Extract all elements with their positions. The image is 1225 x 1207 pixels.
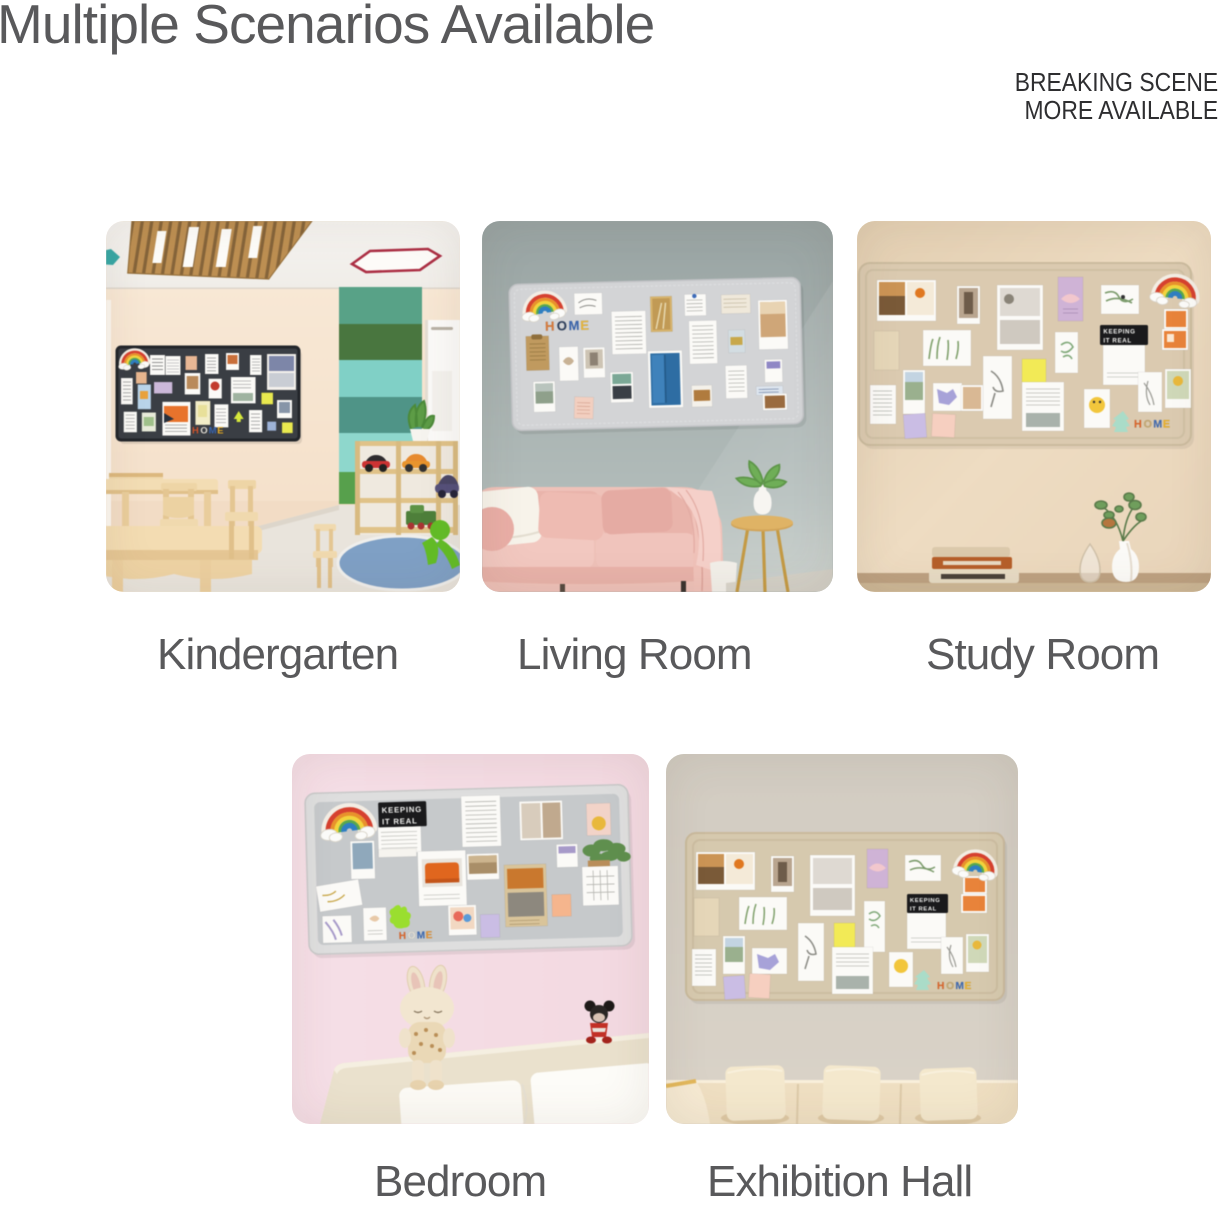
svg-text:H: H: [937, 981, 944, 992]
svg-text:O: O: [557, 318, 568, 333]
svg-text:O: O: [946, 981, 954, 992]
svg-text:H: H: [1134, 419, 1142, 431]
svg-text:KEEPING: KEEPING: [910, 898, 941, 904]
svg-text:IT REAL: IT REAL: [910, 907, 937, 913]
svg-text:O: O: [200, 426, 207, 436]
svg-text:H: H: [192, 426, 199, 436]
svg-text:H: H: [399, 931, 407, 942]
svg-text:M: M: [209, 426, 217, 436]
svg-text:M: M: [568, 318, 579, 333]
svg-text:E: E: [965, 981, 972, 992]
svg-text:KEEPING: KEEPING: [1103, 328, 1135, 335]
svg-text:KEEPING: KEEPING: [382, 805, 423, 815]
svg-text:M: M: [1153, 419, 1162, 431]
svg-text:E: E: [1163, 419, 1170, 431]
svg-text:IT REAL: IT REAL: [1103, 338, 1131, 345]
svg-text:IT REAL: IT REAL: [382, 816, 418, 826]
svg-text:M: M: [955, 981, 964, 992]
svg-text:E: E: [426, 930, 433, 941]
svg-text:E: E: [580, 318, 589, 333]
svg-text:O: O: [408, 930, 416, 941]
svg-text:O: O: [1144, 419, 1152, 431]
svg-text:E: E: [217, 426, 223, 436]
svg-text:M: M: [417, 930, 426, 941]
svg-text:H: H: [545, 318, 555, 333]
